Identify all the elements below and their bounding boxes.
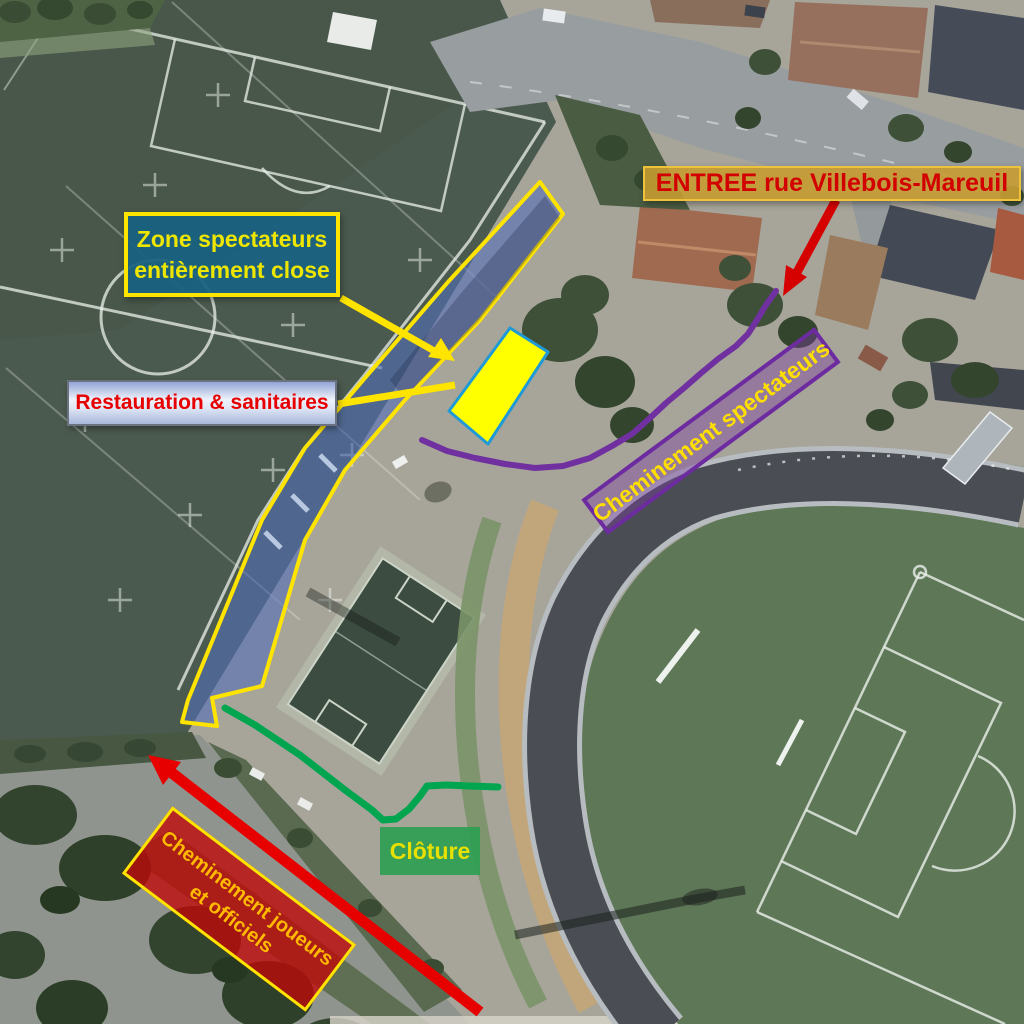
fence-label-text: Clôture xyxy=(390,836,471,866)
spectator-zone-label: Zone spectateurs entièrement close xyxy=(124,212,340,297)
spectator-zone-label-line2: entièrement close xyxy=(134,255,330,285)
entrance-label: ENTREE rue Villebois-Mareuil xyxy=(643,166,1021,201)
stadium-infield xyxy=(580,506,1024,1024)
catering-label-text: Restauration & sanitaires xyxy=(75,389,328,417)
fence-label: Clôture xyxy=(380,827,480,875)
catering-label: Restauration & sanitaires xyxy=(67,380,337,426)
entrance-label-text: ENTREE rue Villebois-Mareuil xyxy=(656,167,1008,200)
aerial-map: ENTREE rue Villebois-Mareuil Zone specta… xyxy=(0,0,1024,1024)
spectator-zone-label-line1: Zone spectateurs xyxy=(137,224,327,254)
